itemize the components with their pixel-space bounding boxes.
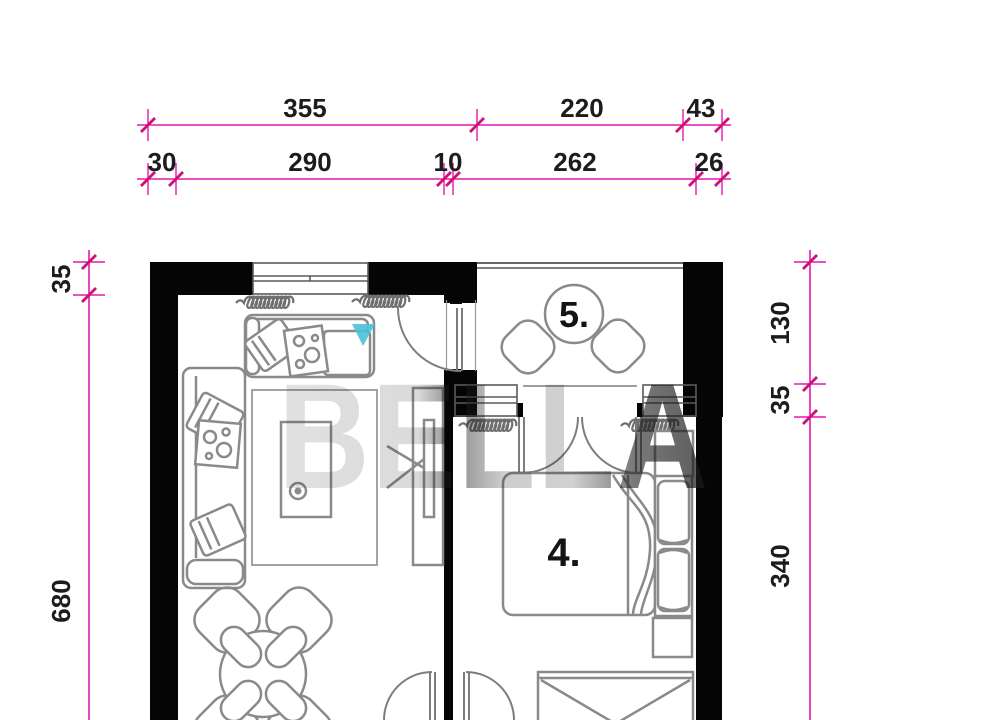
balcony-door-jamb-top bbox=[450, 296, 462, 304]
floor-plan-svg: 5. 4. 35 bbox=[0, 0, 986, 720]
dim-680: 680 bbox=[46, 579, 76, 622]
sofa-throw-blanket bbox=[195, 420, 241, 467]
dim-10: 10 bbox=[434, 147, 463, 177]
room-label-5: 5. bbox=[559, 294, 589, 335]
floor-plan-page: 5. 4. 35 bbox=[0, 0, 986, 720]
wall-top-mid bbox=[368, 262, 455, 295]
dim-30: 30 bbox=[148, 147, 177, 177]
wardrobe bbox=[538, 672, 693, 720]
sofa-armrest bbox=[187, 560, 243, 584]
dim-262: 262 bbox=[553, 147, 596, 177]
dim-355: 355 bbox=[283, 93, 326, 123]
nightstand bbox=[653, 618, 692, 657]
dim-220: 220 bbox=[560, 93, 603, 123]
watermark-text: BELLA bbox=[278, 352, 710, 520]
pillow bbox=[658, 549, 689, 611]
room-label-4: 4. bbox=[547, 531, 580, 575]
dim-130: 130 bbox=[765, 301, 795, 344]
dim-26: 26 bbox=[695, 147, 724, 177]
dim-290: 290 bbox=[288, 147, 331, 177]
wall-top-left bbox=[150, 262, 253, 295]
watermark: BELLA bbox=[278, 324, 710, 520]
dim-340: 340 bbox=[765, 544, 795, 587]
dim-43: 43 bbox=[687, 93, 716, 123]
wall-left bbox=[150, 262, 178, 720]
dim-35-right: 35 bbox=[765, 386, 795, 415]
dim-35-left: 35 bbox=[46, 265, 76, 294]
